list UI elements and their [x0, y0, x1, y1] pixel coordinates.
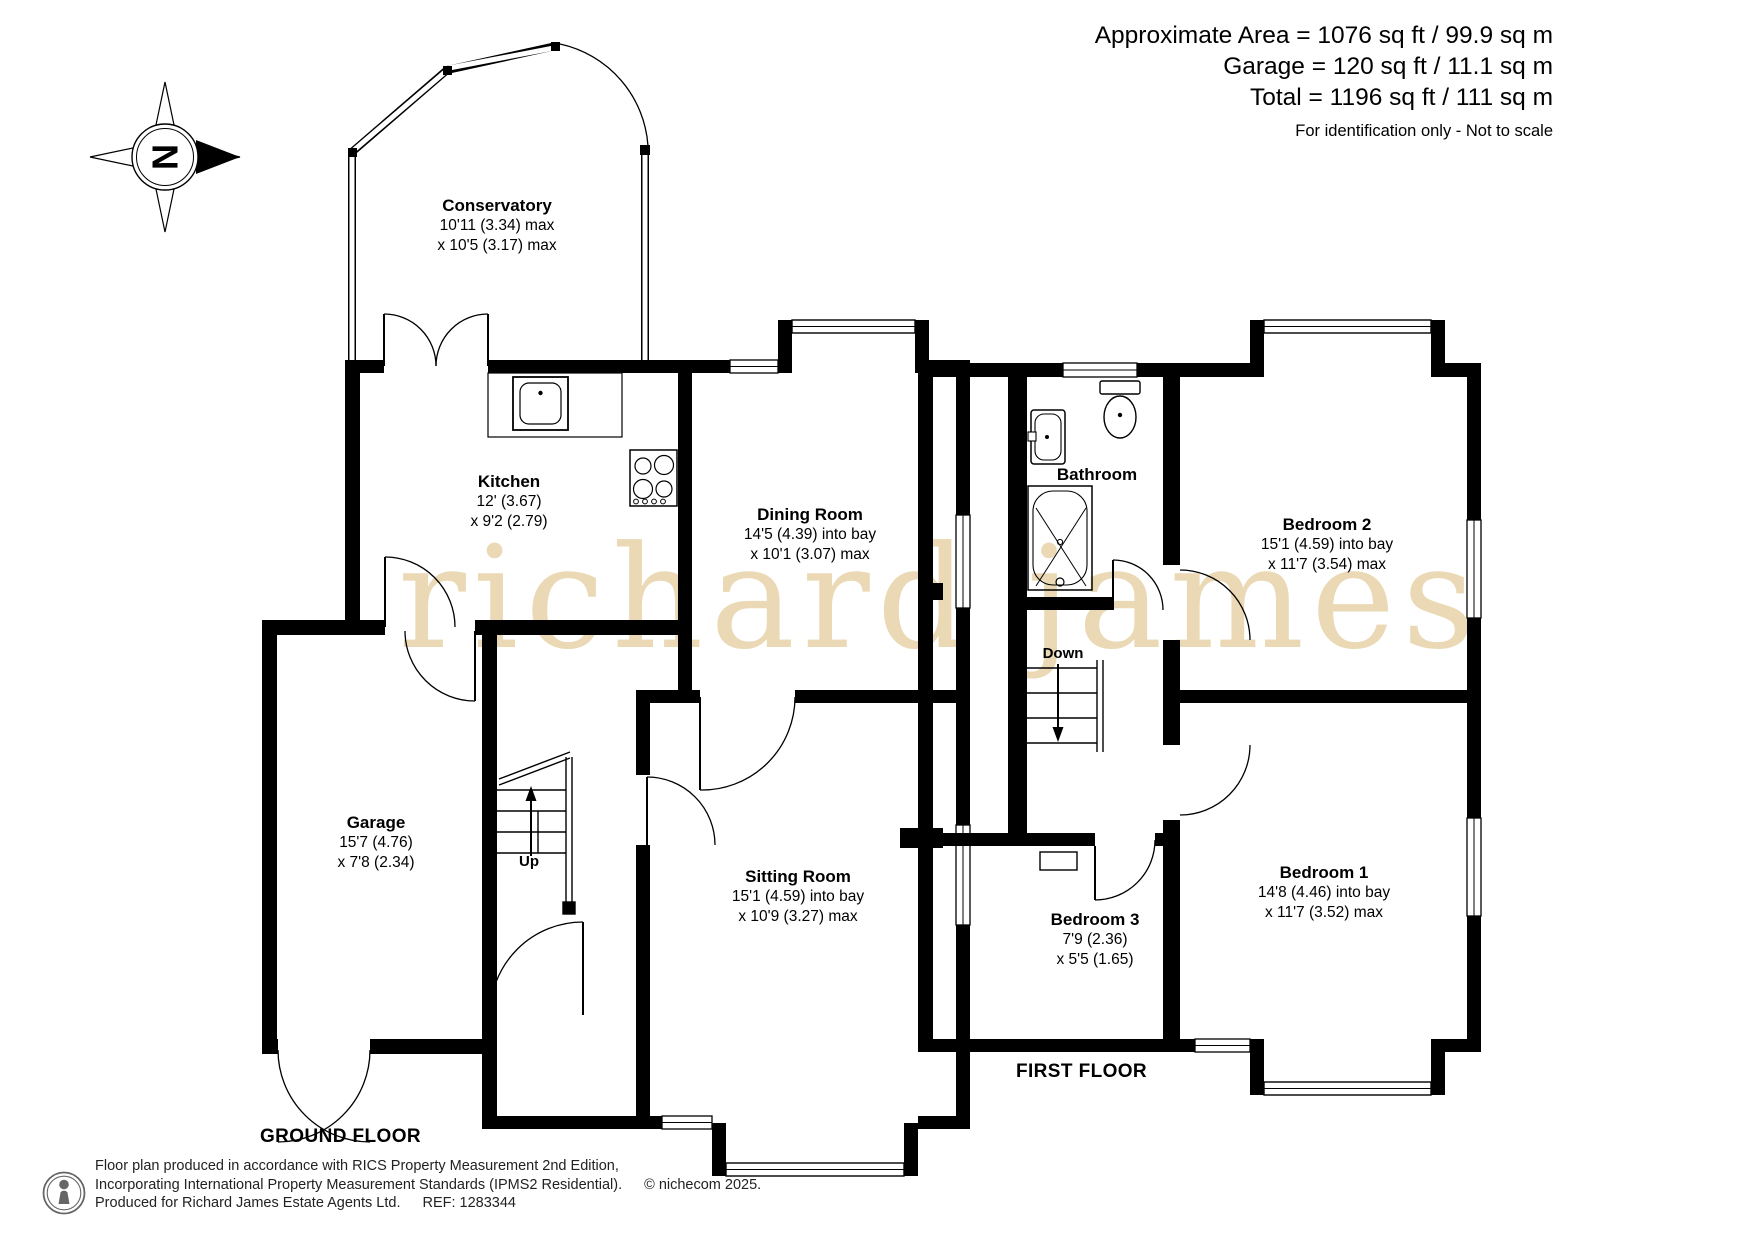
stairs-up-label: Up: [519, 853, 539, 870]
room-label-garage: Garage 15'7 (4.76) x 7'8 (2.34): [337, 813, 414, 873]
room-label-bedroom3: Bedroom 3 7'9 (2.36) x 5'5 (1.65): [1051, 910, 1140, 970]
footer-disclaimer: Floor plan produced in accordance with R…: [95, 1157, 761, 1213]
room-label-dining: Dining Room 14'5 (4.39) into bay x 10'1 …: [744, 505, 876, 565]
garage-area: Garage = 120 sq ft / 11.1 sq m: [1095, 51, 1553, 82]
room-label-conservatory: Conservatory 10'11 (3.34) max x 10'5 (3.…: [437, 196, 556, 256]
copyright-text: © nichecom 2025.: [644, 1177, 761, 1193]
room-label-sitting: Sitting Room 15'1 (4.59) into bay x 10'9…: [732, 867, 864, 927]
room-label-bedroom1: Bedroom 1 14'8 (4.46) into bay x 11'7 (3…: [1258, 863, 1390, 923]
floorplan-page: richard james N: [0, 0, 1755, 1241]
footer-line1: Floor plan produced in accordance with R…: [95, 1157, 761, 1176]
approximate-area: Approximate Area = 1076 sq ft / 99.9 sq …: [1095, 20, 1553, 51]
stairs-down-label: Down: [1043, 645, 1084, 662]
footer-line3: Produced for Richard James Estate Agents…: [95, 1194, 761, 1213]
total-area: Total = 1196 sq ft / 111 sq m: [1095, 82, 1553, 113]
room-label-kitchen: Kitchen 12' (3.67) x 9'2 (2.79): [470, 472, 547, 532]
ground-floor-caption: GROUND FLOOR: [260, 1126, 421, 1148]
room-label-bedroom2: Bedroom 2 15'1 (4.59) into bay x 11'7 (3…: [1261, 515, 1393, 575]
reference-number: REF: 1283344: [422, 1195, 516, 1211]
first-floor-caption: FIRST FLOOR: [1016, 1061, 1147, 1083]
footer-line2: Incorporating International Property Mea…: [95, 1176, 761, 1195]
area-summary: Approximate Area = 1076 sq ft / 99.9 sq …: [1095, 20, 1553, 147]
identification-note: For identification only - Not to scale: [1095, 116, 1553, 147]
room-label-bathroom: Bathroom: [1057, 465, 1137, 485]
